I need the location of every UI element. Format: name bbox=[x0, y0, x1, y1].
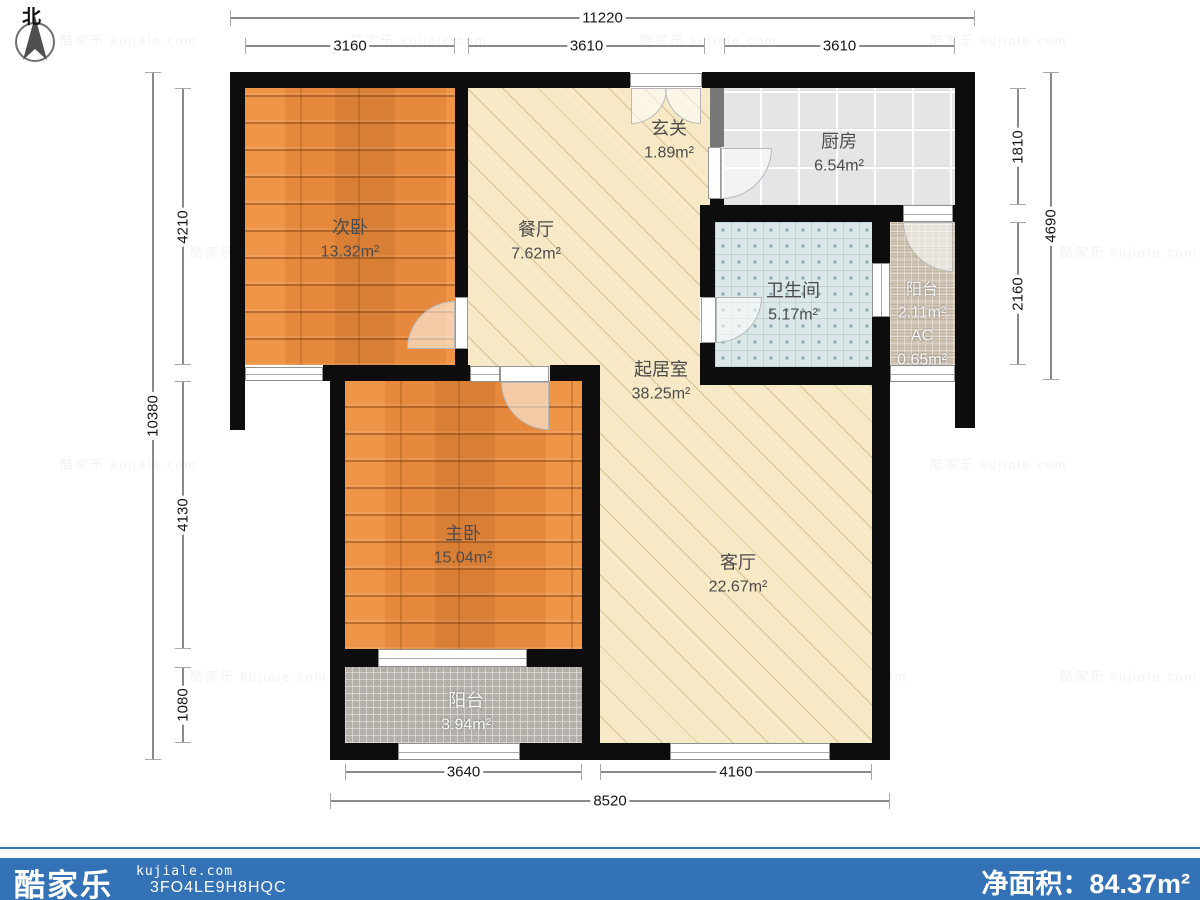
kitchen-door-leaf bbox=[708, 147, 721, 199]
wall bbox=[710, 198, 724, 205]
wall bbox=[872, 222, 890, 263]
room-area: 22.67m² bbox=[709, 575, 768, 598]
window-balcony-bottom bbox=[398, 743, 520, 760]
room-label-entry: 玄关 1.89m² bbox=[644, 115, 694, 164]
dim-top-seg1: 3160 bbox=[245, 38, 455, 54]
dim-left-seg1: 4210 bbox=[175, 88, 191, 365]
room-name: 次卧 bbox=[321, 214, 380, 240]
window-master-balcony bbox=[378, 649, 527, 667]
dim-top-total: 11220 bbox=[230, 10, 975, 26]
wall bbox=[323, 365, 470, 381]
north-compass: 北 bbox=[8, 2, 64, 68]
wall bbox=[872, 385, 890, 760]
half-wall bbox=[710, 88, 724, 147]
ac-area: 0.65m² bbox=[897, 348, 947, 371]
footer-bar: 酷家乐 kujiale.com 3FO4LE9H8HQC 净面积：84.37m² bbox=[0, 858, 1200, 900]
floorplan-page: 酷家乐 kujiale.com酷家乐 kujiale.com酷家乐 kujial… bbox=[0, 0, 1200, 900]
room-area: 6.54m² bbox=[814, 154, 864, 177]
room-name: 阳台 bbox=[897, 279, 947, 302]
room-label-living-core: 起居室 38.25m² bbox=[632, 356, 691, 405]
room-name: 阳台 bbox=[441, 687, 491, 713]
wall bbox=[702, 72, 975, 88]
secondary-bedroom-door-leaf bbox=[455, 297, 468, 349]
room-name: 玄关 bbox=[644, 115, 694, 141]
dim-right-total: 4690 bbox=[1043, 72, 1059, 380]
dim-bottom-total: 8520 bbox=[330, 793, 890, 809]
window-secondary-bedroom bbox=[245, 367, 323, 381]
wall bbox=[700, 222, 715, 297]
wall bbox=[955, 72, 975, 428]
wall bbox=[455, 349, 468, 365]
dim-left-total: 10380 bbox=[145, 72, 161, 760]
wall bbox=[582, 365, 600, 760]
room-label-living-room: 客厅 22.67m² bbox=[709, 549, 768, 598]
room-area: 1.89m² bbox=[644, 141, 694, 164]
window-balcony-right-top bbox=[903, 205, 953, 222]
bathroom-door-leaf bbox=[701, 297, 716, 343]
room-label-dining: 餐厅 7.62m² bbox=[511, 216, 561, 265]
dim-left-seg3: 1080 bbox=[175, 667, 191, 743]
dim-left-seg2: 4130 bbox=[175, 381, 191, 649]
room-label-secondary-bedroom: 次卧 13.32m² bbox=[321, 214, 380, 263]
room-label-balcony-bottom: 阳台 3.94m² bbox=[441, 687, 491, 736]
wall bbox=[700, 367, 890, 385]
dim-top-seg2: 3610 bbox=[468, 38, 705, 54]
room-area: 38.25m² bbox=[632, 382, 691, 405]
dim-bottom-seg1: 3640 bbox=[345, 764, 582, 780]
master-bedroom-door-leaf bbox=[500, 366, 549, 382]
ac-label: AC bbox=[897, 325, 947, 348]
room-name: 起居室 bbox=[632, 356, 691, 382]
room-label-balcony-right: 阳台 2.11m² AC 0.65m² bbox=[897, 279, 947, 372]
room-name: 餐厅 bbox=[511, 216, 561, 242]
brand-logo: 酷家乐 bbox=[14, 860, 113, 900]
room-name: 卫生间 bbox=[766, 277, 820, 303]
dim-bottom-seg2: 4160 bbox=[600, 764, 872, 780]
room-name: 客厅 bbox=[709, 549, 768, 575]
wall bbox=[700, 205, 903, 222]
brand-site: kujiale.com bbox=[136, 864, 233, 879]
dim-right-seg2: 2160 bbox=[1010, 222, 1026, 365]
room-name: 厨房 bbox=[814, 128, 864, 154]
window-living-room bbox=[670, 743, 830, 760]
room-label-master-bedroom: 主卧 15.04m² bbox=[434, 520, 493, 569]
wall bbox=[600, 743, 670, 760]
footer-divider-line bbox=[0, 847, 1200, 849]
room-label-kitchen: 厨房 6.54m² bbox=[814, 128, 864, 177]
room-area: 3.94m² bbox=[441, 713, 491, 736]
wall bbox=[330, 365, 345, 760]
wall bbox=[230, 72, 245, 430]
window-bathroom bbox=[872, 263, 890, 317]
wall bbox=[230, 72, 630, 88]
dim-top-seg3: 3610 bbox=[724, 38, 955, 54]
window-master-top bbox=[470, 366, 500, 382]
plan-code: 3FO4LE9H8HQC bbox=[150, 879, 287, 897]
wall bbox=[700, 343, 715, 385]
room-label-bathroom: 卫生间 5.17m² bbox=[766, 277, 820, 326]
dim-right-seg1: 1810 bbox=[1010, 88, 1026, 205]
net-area-value: 净面积：84.37m² bbox=[981, 862, 1190, 900]
room-name: 主卧 bbox=[434, 520, 493, 546]
wall bbox=[455, 88, 468, 297]
room-area: 13.32m² bbox=[321, 240, 380, 263]
room-area: 15.04m² bbox=[434, 546, 493, 569]
entry-door-leaf bbox=[630, 73, 702, 87]
room-area: 2.11m² bbox=[897, 302, 947, 325]
north-label: 北 bbox=[22, 2, 41, 29]
room-area: 5.17m² bbox=[766, 303, 820, 326]
room-area: 7.62m² bbox=[511, 242, 561, 265]
wall bbox=[872, 317, 890, 385]
